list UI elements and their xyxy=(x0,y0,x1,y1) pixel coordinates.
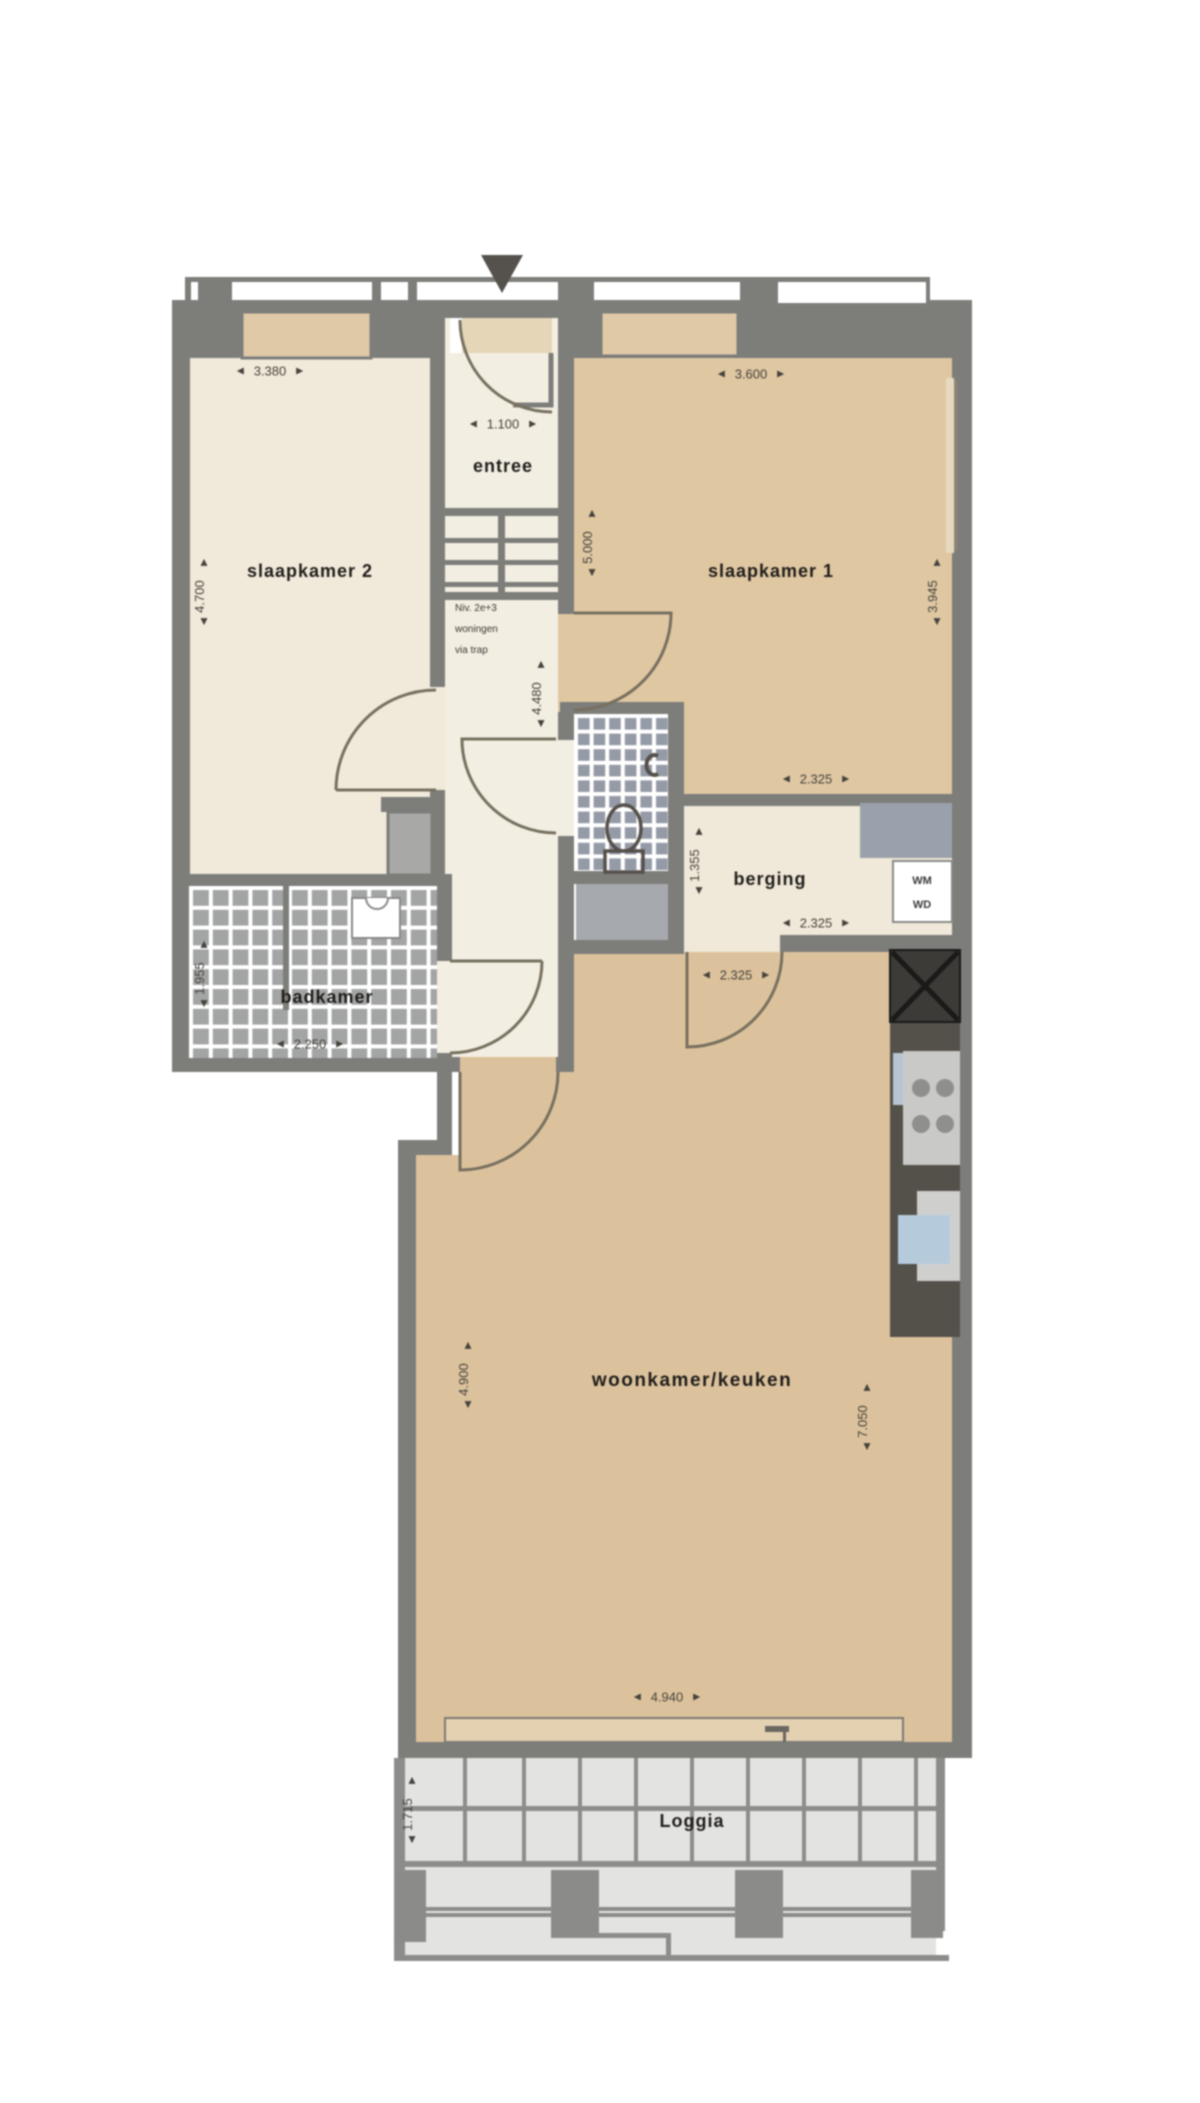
svg-text:4.700: 4.700 xyxy=(192,580,207,613)
svg-text:badkamer: badkamer xyxy=(280,987,373,1007)
svg-text:slaapkamer 1: slaapkamer 1 xyxy=(708,561,834,581)
svg-text:3.380: 3.380 xyxy=(254,364,287,379)
svg-text:7.050: 7.050 xyxy=(855,1405,870,1438)
svg-text:4.480: 4.480 xyxy=(529,682,544,715)
svg-text:1.715: 1.715 xyxy=(400,1798,415,1831)
svg-text:1.355: 1.355 xyxy=(687,849,702,882)
svg-text:WM: WM xyxy=(912,875,932,887)
svg-text:slaapkamer 2: slaapkamer 2 xyxy=(247,561,373,581)
svg-text:4.940: 4.940 xyxy=(651,1690,684,1705)
svg-text:woonkamer/keuken: woonkamer/keuken xyxy=(591,1370,792,1391)
svg-text:entree: entree xyxy=(473,456,533,476)
svg-text:2.250: 2.250 xyxy=(294,1037,327,1052)
svg-text:WD: WD xyxy=(913,899,931,911)
svg-text:5.000: 5.000 xyxy=(580,531,595,564)
svg-text:berging: berging xyxy=(734,869,807,889)
svg-text:3.945: 3.945 xyxy=(925,580,940,613)
svg-text:4.900: 4.900 xyxy=(456,1363,471,1396)
svg-text:2.325: 2.325 xyxy=(720,968,753,983)
svg-text:1.100: 1.100 xyxy=(487,417,520,432)
svg-text:Loggia: Loggia xyxy=(660,1811,725,1831)
svg-text:2.325: 2.325 xyxy=(800,916,833,931)
svg-text:1.955: 1.955 xyxy=(192,962,207,995)
svg-text:3.600: 3.600 xyxy=(735,367,768,382)
svg-text:2.325: 2.325 xyxy=(800,772,833,787)
